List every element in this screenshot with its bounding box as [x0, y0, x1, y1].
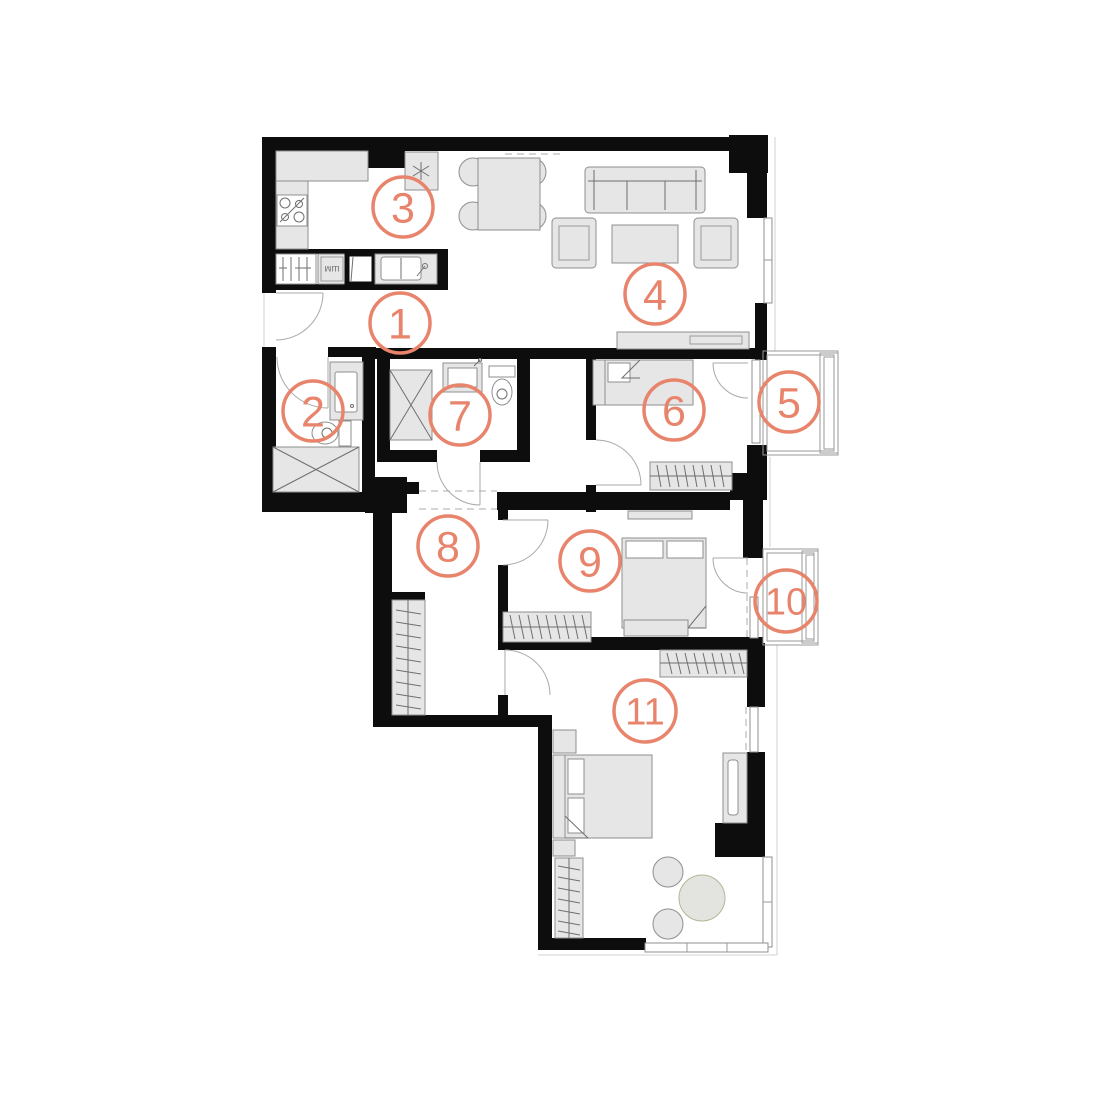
- hall-niche-door: [347, 254, 374, 284]
- wardrobe-11-top: [660, 650, 747, 677]
- bed-11: [553, 755, 652, 838]
- shelf-9: [628, 511, 692, 519]
- wardrobe-6: [650, 462, 732, 490]
- nightstand-11-bottom: [553, 840, 575, 856]
- room-marker-label-10: 10: [765, 582, 807, 624]
- round-table: [679, 875, 725, 921]
- armchair-left: [552, 218, 596, 268]
- shower-2: [273, 447, 359, 492]
- bed-bench-9: [624, 620, 688, 636]
- nightstand-11-top: [553, 730, 576, 753]
- room-marker-label-2: 2: [301, 388, 325, 436]
- bedroom-11-bottom-window: [645, 943, 768, 952]
- wardrobe-11-left: [555, 858, 583, 938]
- chair-11-b: [653, 909, 683, 939]
- sofa: [585, 167, 705, 213]
- wardrobe-8: [392, 600, 425, 715]
- armchair-right: [694, 218, 738, 268]
- kitchen-sink: [375, 254, 437, 284]
- desk-11: [723, 753, 747, 823]
- room-marker-label-11: 11: [625, 692, 664, 734]
- bedroom-11-right-window: [763, 857, 772, 947]
- sideboard: [617, 332, 749, 349]
- stove: [277, 195, 307, 226]
- room-marker-label-7: 7: [448, 392, 472, 440]
- room-marker-label-8: 8: [436, 523, 460, 571]
- washing-machine-label: шм: [324, 263, 339, 274]
- living-room-window: [764, 218, 772, 303]
- coat-rack: [276, 254, 316, 284]
- room-marker-label-5: 5: [777, 379, 801, 427]
- chair-11-a: [653, 857, 683, 887]
- bed-9: [622, 538, 706, 628]
- floor-plan-stage: шм: [0, 0, 1100, 1100]
- shower-7: [390, 370, 432, 440]
- room-marker-label-6: 6: [662, 387, 686, 435]
- room-marker-label-9: 9: [578, 538, 602, 586]
- room-marker-label-4: 4: [643, 271, 667, 319]
- washing-machine: шм: [318, 254, 346, 284]
- wardrobe-9: [503, 612, 591, 642]
- coffee-table: [612, 225, 678, 263]
- dining-table: [478, 158, 540, 230]
- room-marker-label-1: 1: [388, 300, 412, 348]
- room-marker-label-3: 3: [391, 184, 415, 232]
- floor-plan: шм: [0, 0, 1100, 1100]
